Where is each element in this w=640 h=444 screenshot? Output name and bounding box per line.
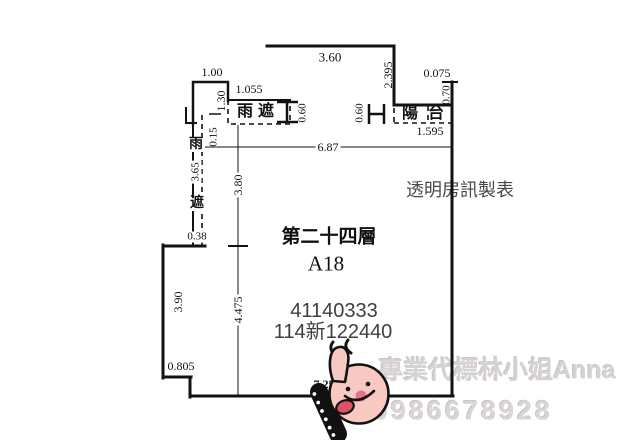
floor-plan-page: 透明房訊製表專業代標林小姐Anna0986678928	[0, 0, 640, 444]
thumbs-up-sticker	[305, 335, 405, 440]
serial-number-1: 41140333	[290, 301, 378, 321]
sticker-eye-left	[346, 387, 351, 392]
dim-1-595: 1.595	[417, 125, 444, 137]
dim-6-87: 6.87	[316, 141, 341, 153]
dim-3-60: 3.60	[319, 51, 342, 64]
floor-title: 第二十四層	[281, 228, 376, 247]
dim-0-70: 0.70	[442, 85, 453, 104]
dim-1-30: 1.30	[215, 91, 227, 112]
room-rain-shelter-left-char2: 遮	[188, 197, 206, 211]
room-rain-shelter-left-char1: 雨	[187, 138, 205, 152]
dim-2-395: 2.395	[382, 62, 394, 89]
unit-title: A18	[308, 254, 344, 275]
dim-3-90: 3.90	[172, 292, 184, 313]
sticker-thumb	[330, 347, 349, 382]
room-rain-shelter: 雨遮	[237, 104, 279, 120]
dim-3-65: 3.65	[191, 160, 202, 183]
dim-1-055: 1.055	[236, 83, 263, 95]
dim-4-475: 4.475	[232, 295, 244, 326]
dim-1-00: 1.00	[202, 66, 223, 78]
dim-0-60-left: 0.60	[298, 103, 309, 122]
dim-0-38: 0.38	[185, 232, 208, 243]
dim-3-80: 3.80	[232, 173, 244, 198]
dim-0-15: 0.15	[209, 127, 220, 146]
dim-0-075: 0.075	[424, 67, 451, 79]
room-balcony: 陽台	[402, 106, 454, 122]
dim-0-805: 0.805	[168, 360, 195, 372]
dim-0-60-right: 0.60	[355, 103, 366, 122]
sticker-eye-right	[366, 382, 371, 387]
